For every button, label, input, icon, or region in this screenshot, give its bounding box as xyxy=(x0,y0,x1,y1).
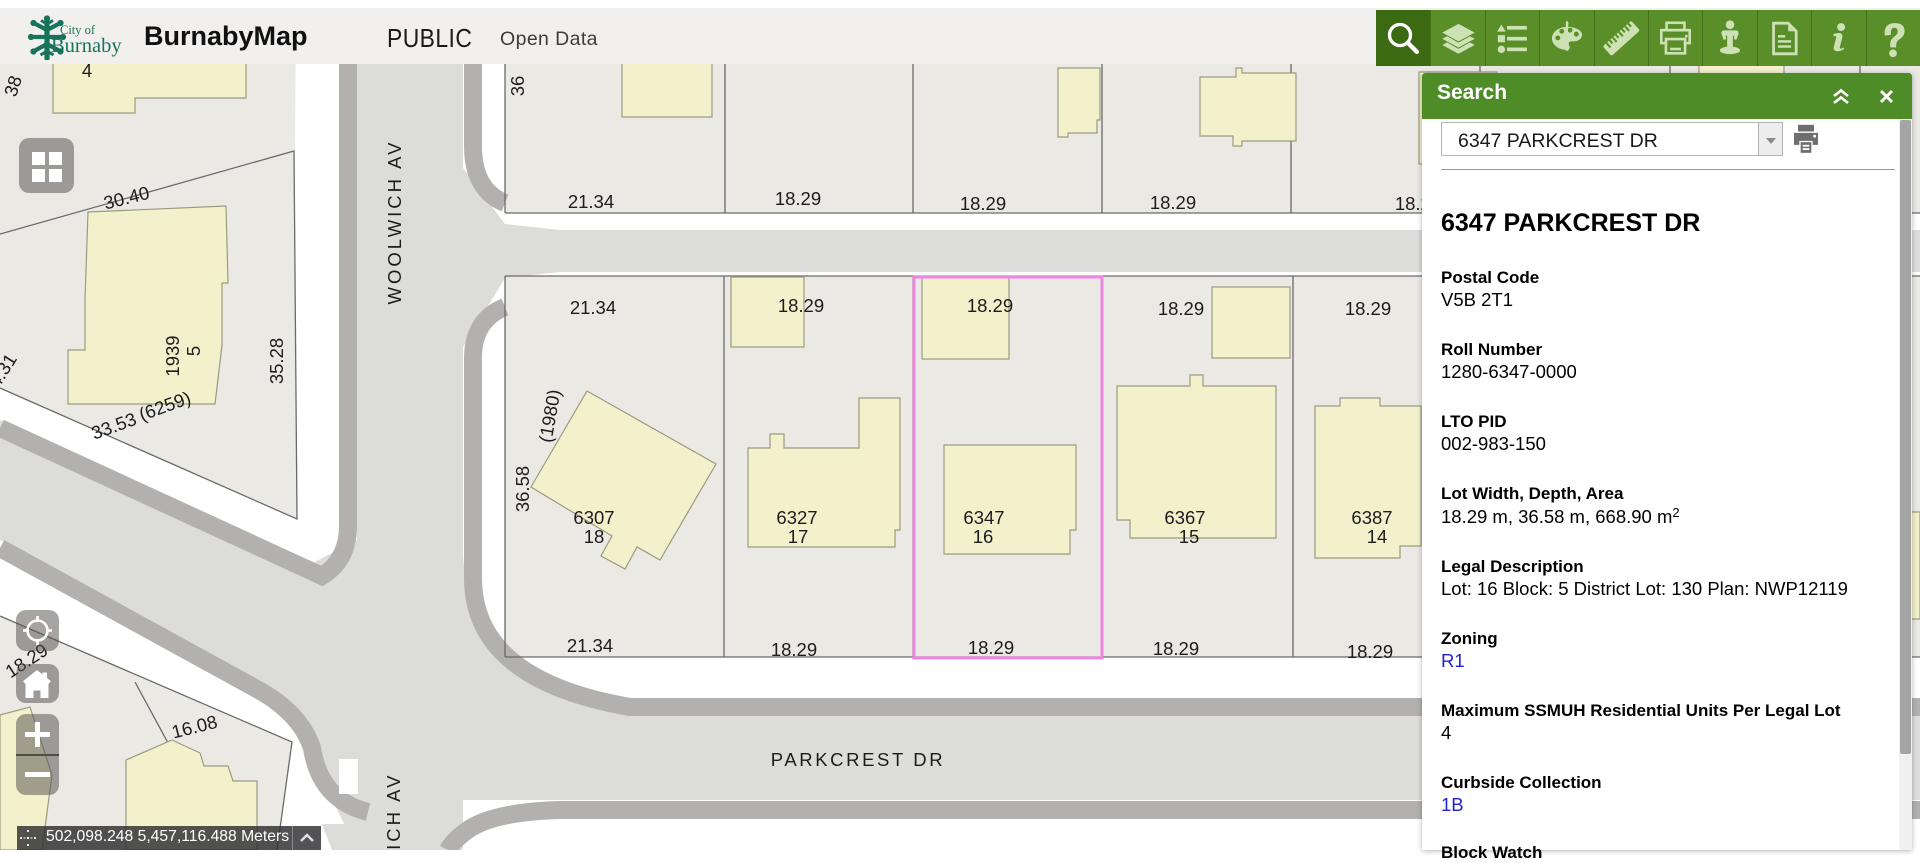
svg-text:17: 17 xyxy=(788,526,809,547)
svg-text:16: 16 xyxy=(973,526,994,547)
svg-text:Burnaby: Burnaby xyxy=(51,35,122,57)
svg-text:5: 5 xyxy=(183,346,204,356)
svg-text:18.29: 18.29 xyxy=(960,193,1006,214)
svg-text:36: 36 xyxy=(507,76,528,97)
svg-text:6387: 6387 xyxy=(1351,507,1392,528)
svg-text:6347: 6347 xyxy=(963,507,1004,528)
svg-text:18.29: 18.29 xyxy=(1153,638,1199,659)
svg-text:18: 18 xyxy=(584,526,605,547)
svg-text:6327: 6327 xyxy=(776,507,817,528)
svg-text:18.29: 18.29 xyxy=(968,637,1014,658)
svg-text:18.29: 18.29 xyxy=(1150,192,1196,213)
svg-text:21.34: 21.34 xyxy=(567,635,613,656)
svg-text:18.29: 18.29 xyxy=(778,295,824,316)
svg-text:36.58: 36.58 xyxy=(512,466,533,512)
svg-text:PARKCREST DR: PARKCREST DR xyxy=(771,749,945,770)
svg-text:15: 15 xyxy=(1179,526,1200,547)
svg-text:18.29: 18.29 xyxy=(775,188,821,209)
svg-text:21.34: 21.34 xyxy=(568,191,614,212)
svg-text:WOOLWICH AV: WOOLWICH AV xyxy=(383,773,404,850)
svg-text:WOOLWICH AV: WOOLWICH AV xyxy=(384,140,405,305)
svg-text:21.34: 21.34 xyxy=(570,297,616,318)
svg-text:18.29: 18.29 xyxy=(771,639,817,660)
svg-text:6307: 6307 xyxy=(573,507,614,528)
svg-text:18.29: 18.29 xyxy=(1158,298,1204,319)
svg-text:18.29: 18.29 xyxy=(1347,641,1393,662)
svg-text:18.29: 18.29 xyxy=(967,295,1013,316)
svg-text:1939: 1939 xyxy=(162,335,183,376)
svg-text:18.29: 18.29 xyxy=(1345,298,1391,319)
svg-text:6367: 6367 xyxy=(1164,507,1205,528)
svg-text:35.28: 35.28 xyxy=(266,338,287,384)
svg-text:14: 14 xyxy=(1367,526,1388,547)
